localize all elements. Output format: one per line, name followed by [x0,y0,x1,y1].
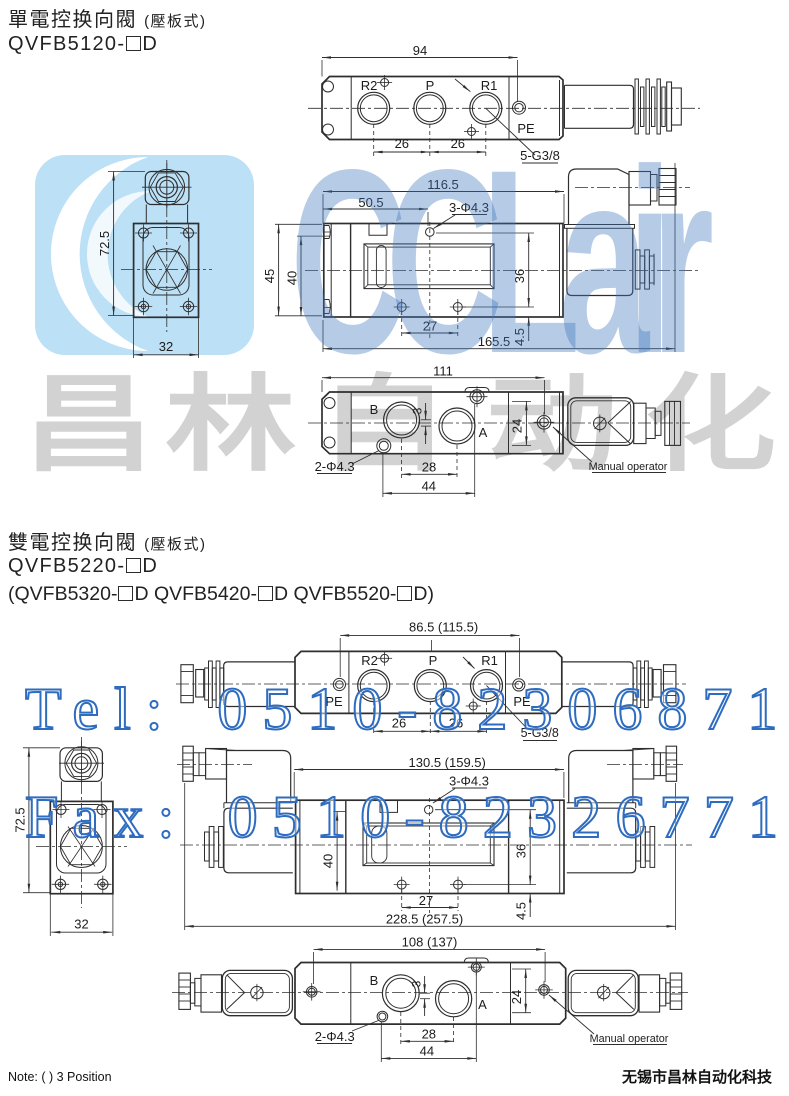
svg-text:94: 94 [413,43,427,58]
svg-text:27: 27 [419,893,433,908]
svg-text:24: 24 [509,990,524,1004]
svg-text:2-Φ4.3: 2-Φ4.3 [315,1029,355,1044]
svg-text:R2: R2 [361,78,378,93]
svg-text:32: 32 [74,917,88,932]
svg-text:28: 28 [422,1027,436,1042]
svg-text:P: P [429,653,438,668]
svg-text:R2: R2 [361,653,378,668]
svg-text:32: 32 [159,339,173,354]
svg-text:130.5 (159.5): 130.5 (159.5) [409,755,486,770]
svg-text:B: B [370,973,379,988]
svg-text:3: 3 [411,407,425,414]
svg-text:86.5 (115.5): 86.5 (115.5) [409,620,478,635]
svg-text:2-Φ4.3: 2-Φ4.3 [315,459,355,474]
svg-text:P: P [426,78,435,93]
svg-text:Manual operator: Manual operator [590,1033,669,1045]
svg-text:45: 45 [262,269,277,283]
svg-text:72.5: 72.5 [97,231,112,256]
svg-text:A: A [478,997,487,1012]
svg-text:R1: R1 [481,653,498,668]
svg-text:40: 40 [321,854,336,868]
svg-text:A: A [479,425,488,440]
svg-text:3: 3 [410,980,424,987]
svg-text:Manual operator: Manual operator [589,461,668,473]
svg-text:24: 24 [510,419,525,433]
svg-text:108 (137): 108 (137) [402,935,458,950]
svg-text:R1: R1 [481,78,498,93]
svg-text:28: 28 [422,460,436,475]
svg-text:4.5: 4.5 [514,902,529,920]
svg-text:228.5 (257.5): 228.5 (257.5) [386,912,463,927]
svg-text:44: 44 [422,479,436,494]
svg-text:44: 44 [420,1044,434,1059]
